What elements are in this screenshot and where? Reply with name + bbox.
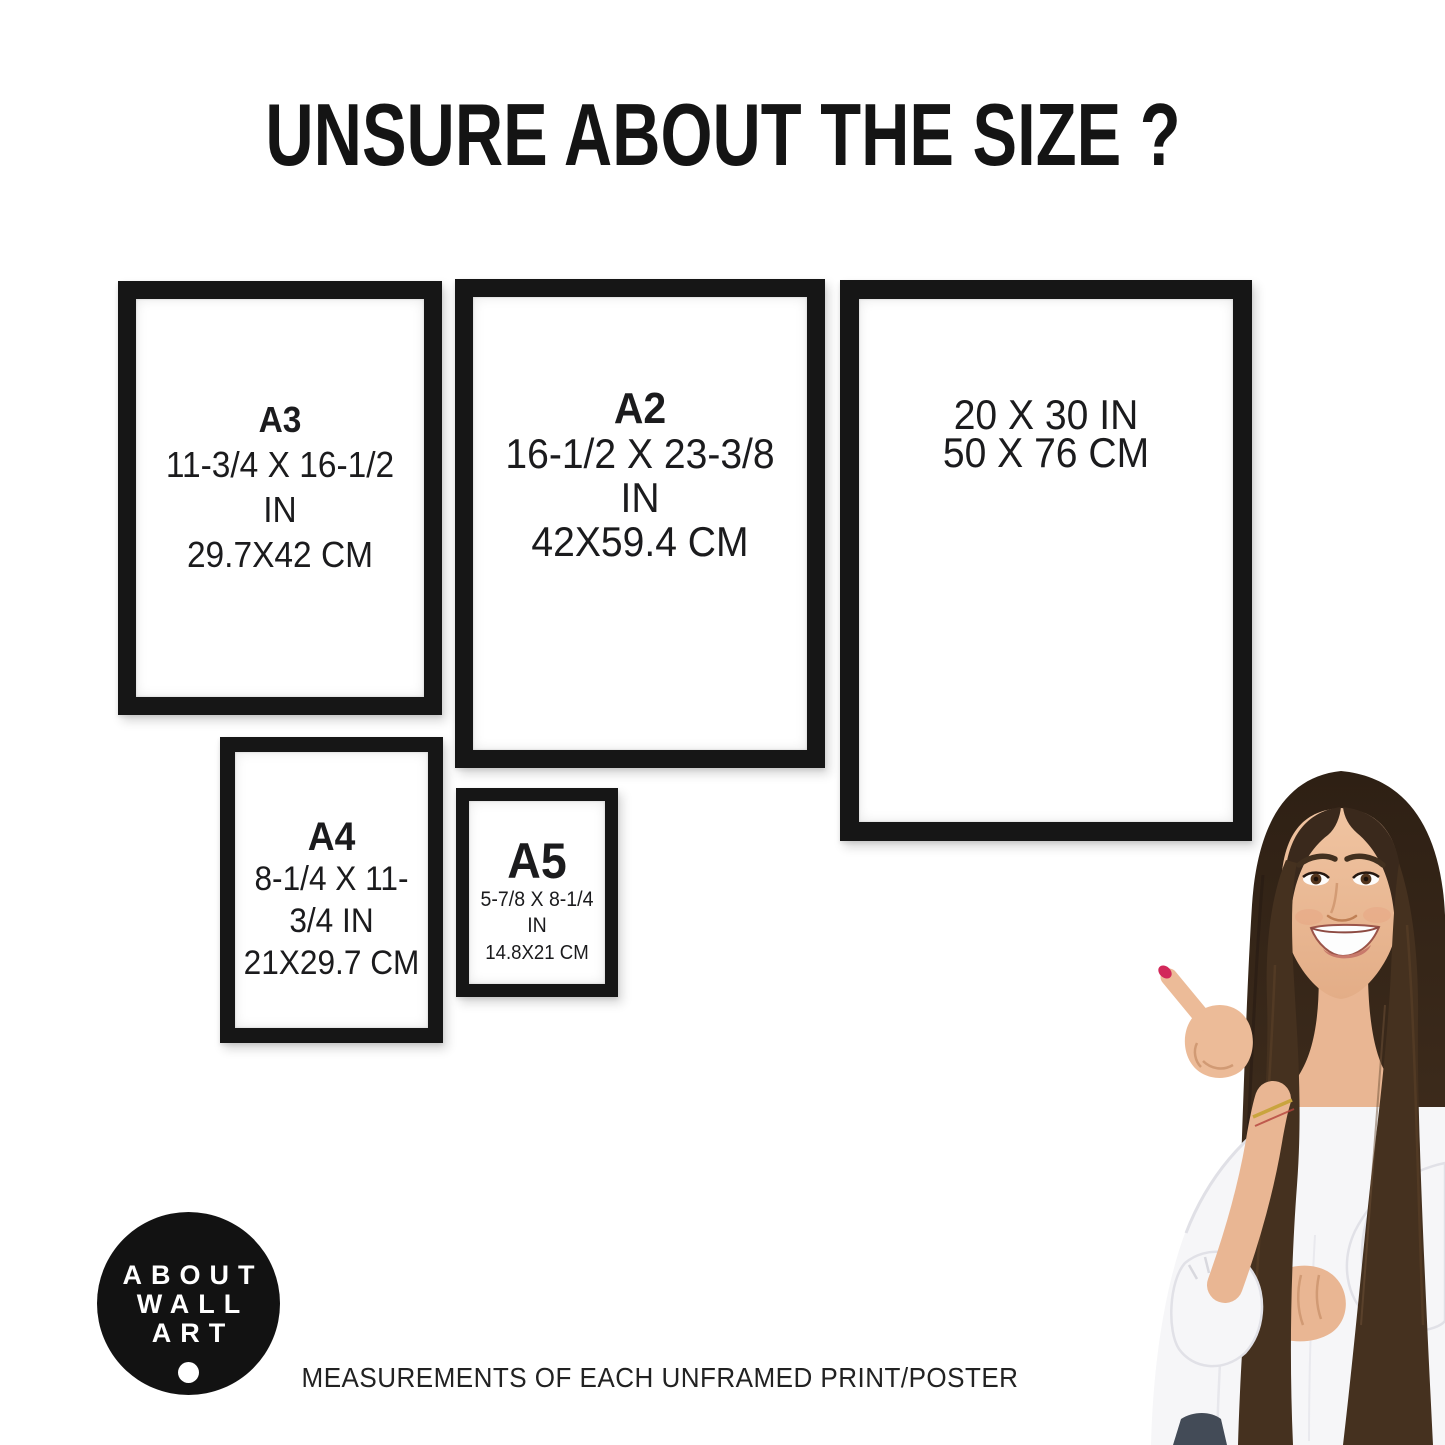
frame-a3-cm: 29.7X42 CM xyxy=(146,532,414,577)
frame-a3-text: A3 11-3/4 X 16-1/2 IN 29.7X42 CM xyxy=(146,299,414,577)
frame-a4-text: A4 8-1/4 X 11-3/4 IN 21X29.7 CM xyxy=(242,752,421,984)
frame-a3-label: A3 xyxy=(146,398,414,442)
frame-a4-cm: 21X29.7 CM xyxy=(242,942,421,984)
frame-a3-inches: 11-3/4 X 16-1/2 IN xyxy=(146,442,414,532)
frame-a3: A3 11-3/4 X 16-1/2 IN 29.7X42 CM xyxy=(118,281,442,715)
frame-20x30-cm: 50 X 76 CM xyxy=(872,434,1220,472)
frame-a5-label: A5 xyxy=(474,835,600,887)
logo-line-wall: WALL xyxy=(97,1290,280,1319)
frame-a2-cm: 42X59.4 CM xyxy=(485,520,796,564)
logo-line-art: ART xyxy=(97,1319,280,1348)
frame-a5-inches: 5-7/8 X 8-1/4 IN xyxy=(474,887,600,939)
caption: MEASUREMENTS OF EACH UNFRAMED PRINT/POST… xyxy=(302,1362,1019,1394)
page-title: UNSURE ABOUT THE SIZE ? xyxy=(115,84,1331,186)
frame-a2-text: A2 16-1/2 X 23-3/8 IN 42X59.4 CM xyxy=(485,297,796,564)
woman-pointing-photo xyxy=(1085,765,1445,1445)
frame-20x30: 20 X 30 IN 50 X 76 CM xyxy=(840,280,1252,841)
brand-logo: ABOUT WALL ART xyxy=(97,1212,280,1395)
frame-a5-cm: 14.8X21 CM xyxy=(474,941,600,965)
frame-a5-text: A5 5-7/8 X 8-1/4 IN 14.8X21 CM xyxy=(474,801,600,965)
logo-line-about: ABOUT xyxy=(97,1261,280,1290)
frame-a2-inches: 16-1/2 X 23-3/8 IN xyxy=(485,432,796,520)
frame-a4-label: A4 xyxy=(242,816,421,858)
frame-a4-inches: 8-1/4 X 11-3/4 IN xyxy=(242,858,421,942)
frame-a2-label: A2 xyxy=(485,386,796,432)
woman-pointing-hand xyxy=(1156,963,1253,1078)
size-guide-canvas: UNSURE ABOUT THE SIZE ? A3 11-3/4 X 16-1… xyxy=(0,0,1445,1445)
frame-a5: A5 5-7/8 X 8-1/4 IN 14.8X21 CM xyxy=(456,788,618,997)
frame-20x30-text: 20 X 30 IN 50 X 76 CM xyxy=(872,299,1220,472)
frame-a2: A2 16-1/2 X 23-3/8 IN 42X59.4 CM xyxy=(455,279,825,768)
logo-dot xyxy=(178,1362,199,1383)
frame-a4: A4 8-1/4 X 11-3/4 IN 21X29.7 CM xyxy=(220,737,443,1043)
